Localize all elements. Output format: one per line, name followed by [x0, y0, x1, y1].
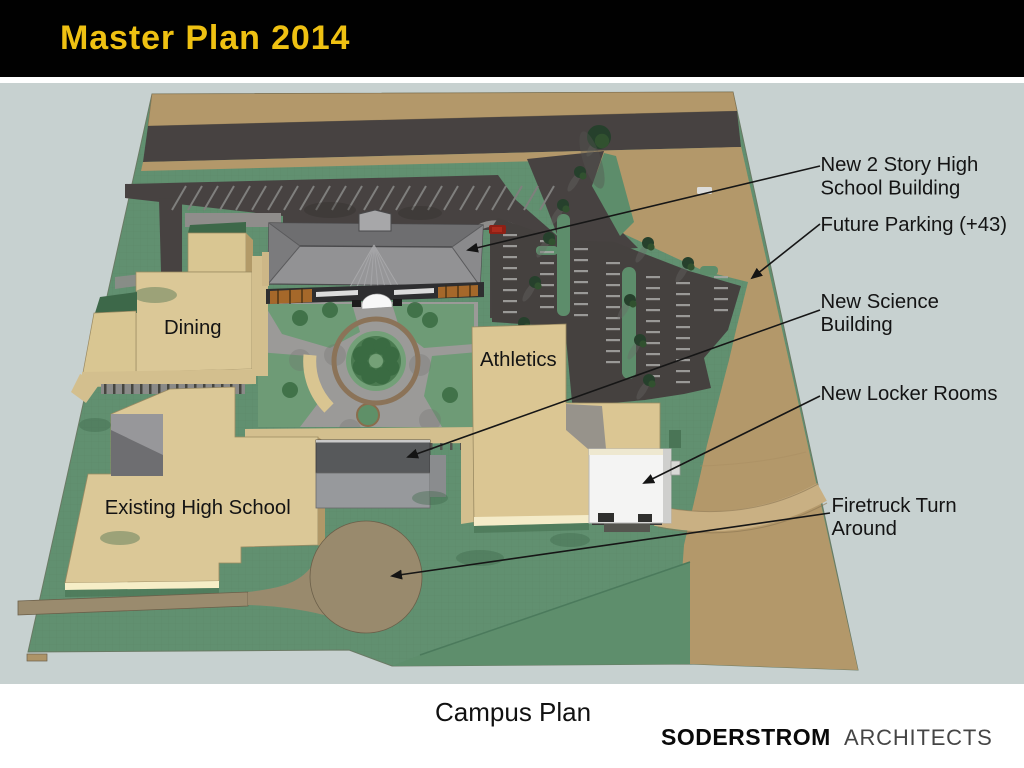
- svg-text:ARCHITECTS: ARCHITECTS: [844, 725, 993, 750]
- svg-text:Campus Plan: Campus Plan: [435, 697, 591, 727]
- svg-text:Athletics: Athletics: [480, 349, 557, 371]
- svg-text:Around: Around: [832, 518, 897, 540]
- svg-text:Future Parking (+43): Future Parking (+43): [821, 214, 1008, 236]
- svg-text:New Locker Rooms: New Locker Rooms: [821, 383, 998, 405]
- svg-text:Building: Building: [821, 314, 893, 336]
- svg-text:Existing High School: Existing High School: [105, 497, 291, 519]
- svg-text:New 2 Story High: New 2 Story High: [821, 154, 979, 176]
- svg-text:SODERSTROM: SODERSTROM: [661, 724, 831, 750]
- svg-text:Dining: Dining: [164, 317, 222, 339]
- svg-text:Firetruck Turn: Firetruck Turn: [832, 495, 957, 517]
- svg-text:Master Plan 2014: Master Plan 2014: [60, 19, 350, 57]
- svg-text:New Science: New Science: [821, 291, 939, 313]
- svg-text:School Building: School Building: [821, 178, 961, 200]
